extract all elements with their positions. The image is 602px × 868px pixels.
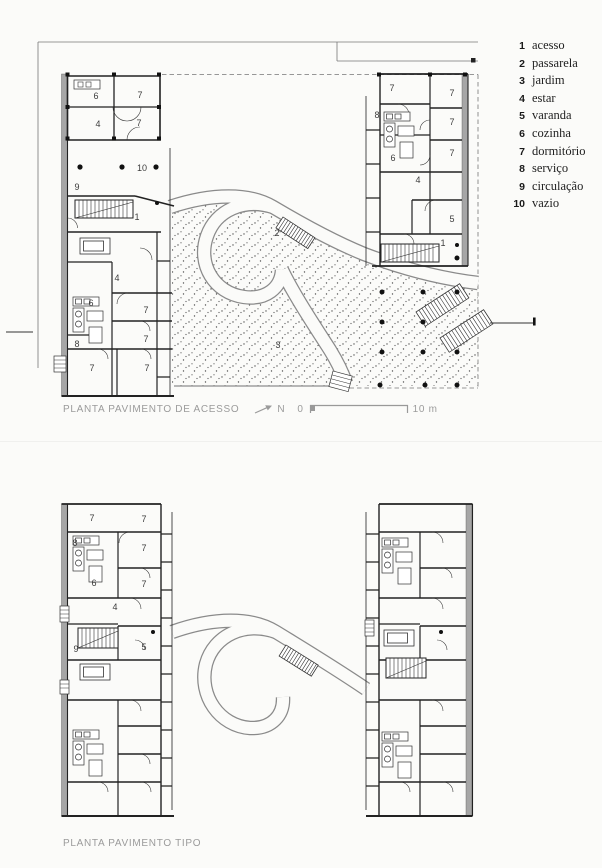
room-number-label: 6 bbox=[390, 153, 395, 163]
legend-item: 9circulação bbox=[506, 178, 585, 196]
legend-item: 3jardim bbox=[506, 72, 585, 90]
room-number-label: 7 bbox=[449, 117, 454, 127]
room-number-label: 9 bbox=[74, 182, 79, 192]
room-number-label: 3 bbox=[275, 340, 280, 350]
plan-acesso-title: PLANTA PAVIMENTO DE ACESSO bbox=[63, 404, 239, 415]
scan-crease bbox=[0, 441, 602, 442]
legend-label: estar bbox=[532, 90, 556, 107]
room-number-label: 1 bbox=[134, 212, 139, 222]
legend-number: 1 bbox=[506, 38, 525, 55]
legend-item: 6cozinha bbox=[506, 125, 585, 143]
legend-number: 8 bbox=[506, 161, 525, 178]
legend-number: 5 bbox=[506, 108, 525, 125]
scale-end-label: 10 m bbox=[413, 404, 438, 415]
legend-number: 9 bbox=[506, 179, 525, 196]
legend-item: 5varanda bbox=[506, 107, 585, 125]
room-number-label: 7 bbox=[143, 305, 148, 315]
legend-label: jardim bbox=[532, 72, 565, 89]
room-number-label: 7 bbox=[449, 148, 454, 158]
north-indicator: N bbox=[253, 403, 285, 415]
room-number-label: 7 bbox=[389, 83, 394, 93]
room-number-label: 4 bbox=[114, 273, 119, 283]
legend: 1acesso 2passarela 3jardim 4estar 5varan… bbox=[506, 37, 585, 213]
legend-number: 10 bbox=[506, 196, 525, 213]
room-number-label: 8 bbox=[72, 538, 77, 548]
room-number-label: 6 bbox=[88, 298, 93, 308]
legend-number: 4 bbox=[506, 91, 525, 108]
legend-label: acesso bbox=[532, 37, 565, 54]
legend-item: 10vazio bbox=[506, 195, 585, 213]
room-number-label: 4 bbox=[95, 119, 100, 129]
legend-item: 7dormitório bbox=[506, 143, 585, 161]
legend-label: passarela bbox=[532, 55, 578, 72]
room-number-label: 7 bbox=[136, 118, 141, 128]
legend-item: 4estar bbox=[506, 90, 585, 108]
scale-zero-label: 0 bbox=[297, 404, 303, 415]
room-number-label: 8 bbox=[74, 339, 79, 349]
room-number-label: 8 bbox=[374, 110, 379, 120]
room-number-label: 7 bbox=[144, 363, 149, 373]
right-building-acesso bbox=[366, 73, 468, 267]
legend-number: 6 bbox=[506, 126, 525, 143]
right-building-tipo bbox=[365, 504, 473, 816]
plan-acesso-caption: PLANTA PAVIMENTO DE ACESSO N 0 10 m bbox=[63, 403, 438, 415]
plan-tipo-caption: PLANTA PAVIMENTO TIPO bbox=[63, 838, 201, 849]
left-building-tipo bbox=[60, 504, 174, 816]
room-number-label: 10 bbox=[137, 163, 147, 173]
room-number-label: 7 bbox=[137, 90, 142, 100]
room-number-label: 7 bbox=[449, 88, 454, 98]
legend-number: 7 bbox=[506, 144, 525, 161]
room-number-label: 7 bbox=[141, 514, 146, 524]
legend-label: cozinha bbox=[532, 125, 571, 142]
room-number-label: 6 bbox=[91, 578, 96, 588]
legend-item: 1acesso bbox=[506, 37, 585, 55]
scale-bar-icon bbox=[309, 404, 409, 415]
room-number-label: 1 bbox=[440, 238, 445, 248]
legend-item: 2passarela bbox=[506, 55, 585, 73]
room-number-label: 2 bbox=[274, 228, 279, 238]
door-arcs bbox=[98, 532, 151, 792]
room-number-label: 5 bbox=[449, 214, 454, 224]
legend-label: vazio bbox=[532, 195, 559, 212]
north-arrow-icon bbox=[253, 403, 275, 415]
walkway-path-tipo bbox=[172, 621, 366, 728]
room-number-label: 7 bbox=[89, 513, 94, 523]
legend-label: circulação bbox=[532, 178, 583, 195]
legend-number: 2 bbox=[506, 56, 525, 73]
room-number-label: 7 bbox=[141, 543, 146, 553]
scale-bar: 0 10 m bbox=[297, 404, 437, 415]
plan-acesso: 6 7 4 7 9 10 1 4 6 7 7 8 7 7 7 7 8 7 6 7… bbox=[6, 42, 536, 396]
plan-tipo-title: PLANTA PAVIMENTO TIPO bbox=[63, 838, 201, 849]
legend-item: 8serviço bbox=[506, 160, 585, 178]
room-number-label: 7 bbox=[89, 363, 94, 373]
plan-tipo: 7 7 8 7 6 7 4 9 5 bbox=[60, 504, 473, 816]
room-number-label: 7 bbox=[143, 334, 148, 344]
room-number-label: 5 bbox=[141, 642, 146, 652]
left-building-acesso bbox=[54, 73, 174, 397]
legend-label: serviço bbox=[532, 160, 568, 177]
room-number-label: 4 bbox=[415, 175, 420, 185]
room-number-label: 9 bbox=[73, 644, 78, 654]
legend-number: 3 bbox=[506, 73, 525, 90]
north-label: N bbox=[277, 404, 285, 415]
room-number-label: 4 bbox=[112, 602, 117, 612]
room-number-label: 6 bbox=[93, 91, 98, 101]
legend-label: varanda bbox=[532, 107, 572, 124]
legend-label: dormitório bbox=[532, 143, 585, 160]
room-number-label: 7 bbox=[141, 579, 146, 589]
scanned-page: 6 7 4 7 9 10 1 4 6 7 7 8 7 7 7 7 8 7 6 7… bbox=[0, 0, 602, 868]
